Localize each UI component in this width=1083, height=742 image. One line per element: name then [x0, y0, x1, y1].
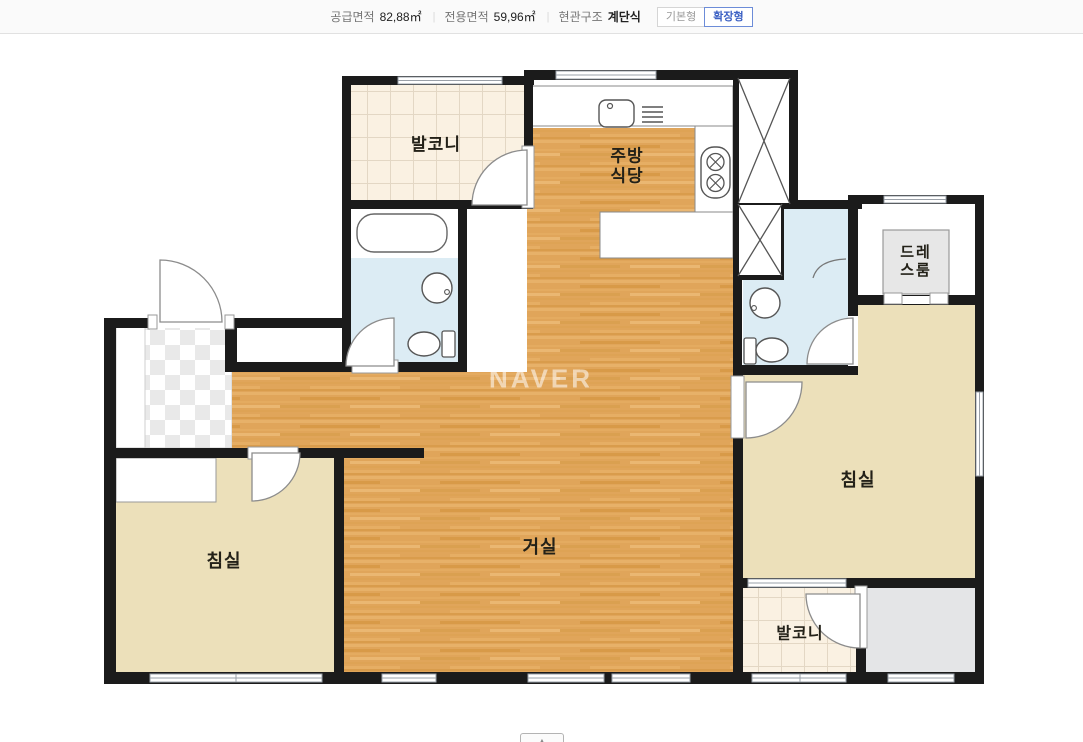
washbasin-right-icon: [750, 288, 780, 318]
utility-room-floor: [866, 588, 975, 672]
floorplan-page: NAVER 발코니 주방 식당 드레 스룸 침실 거실 침실 발코니 공급면적 …: [0, 0, 1083, 742]
divider: |: [433, 11, 436, 23]
entry-cabinet: [116, 327, 145, 448]
entry-floor: [145, 327, 232, 448]
bedroom-right-door-frame: [731, 376, 744, 438]
shaft-x-icon: [738, 78, 790, 276]
toilet-right-icon: [744, 338, 788, 364]
extended-type-button[interactable]: 확장형: [704, 7, 752, 27]
info-bar: 공급면적 82,88㎡ | 전용면적 59,96㎡ | 현관구조 계단식 기본형…: [0, 0, 1083, 34]
room-label-bedroom-left: 침실: [206, 551, 241, 573]
room-label-bedroom-right: 침실: [840, 470, 875, 492]
chevron-up-icon: ▲: [539, 738, 546, 742]
washbasin-left-icon: [422, 273, 452, 303]
collapse-button[interactable]: ▲: [520, 733, 564, 742]
toilet-left-icon: [408, 331, 455, 357]
bathtub-icon: [357, 214, 447, 252]
entry-door-arc: [160, 260, 222, 322]
plan-type-switch: 기본형 확장형: [657, 7, 753, 27]
exclusive-area-label: 전용면적: [444, 8, 488, 25]
entrance-structure-value: 계단식: [608, 8, 641, 25]
entrance-structure-label: 현관구조: [559, 8, 603, 25]
supply-area-value: 82,88㎡: [380, 8, 422, 25]
room-label-kitchen: 주방 식당: [610, 147, 643, 188]
room-label-living: 거실: [522, 537, 557, 559]
exclusive-area-value: 59,96㎡: [494, 8, 536, 25]
room-label-balcony-bottom: 발코니: [776, 624, 823, 643]
naver-watermark: NAVER: [489, 364, 593, 395]
basic-type-button[interactable]: 기본형: [657, 7, 705, 27]
kitchen-counter-island: [600, 212, 733, 258]
room-label-balcony-top: 발코니: [411, 135, 461, 155]
divider: |: [547, 11, 550, 23]
supply-area-label: 공급면적: [330, 8, 374, 25]
stove-icon: [701, 147, 730, 198]
bedroom-left-closet: [116, 458, 216, 502]
room-label-dressroom: 드레 스룸: [900, 244, 932, 280]
